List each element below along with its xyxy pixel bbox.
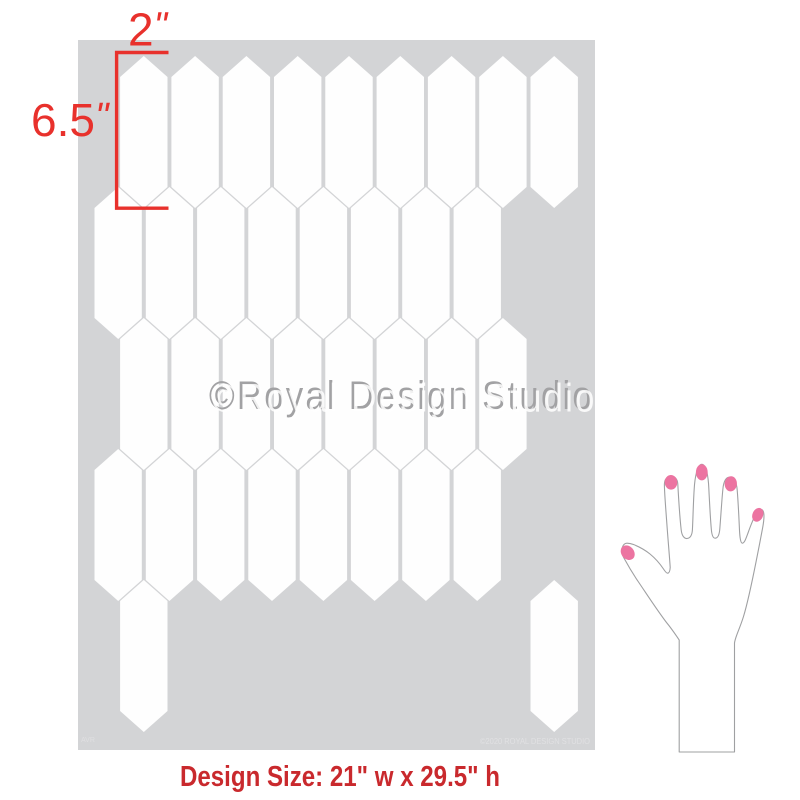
- svg-text:©2020 ROYAL DESIGN STUDIO: ©2020 ROYAL DESIGN STUDIO: [480, 737, 590, 746]
- svg-text:©Royal Design Studio: ©Royal Design Studio: [212, 377, 597, 421]
- svg-text:AVR: AVR: [81, 737, 95, 744]
